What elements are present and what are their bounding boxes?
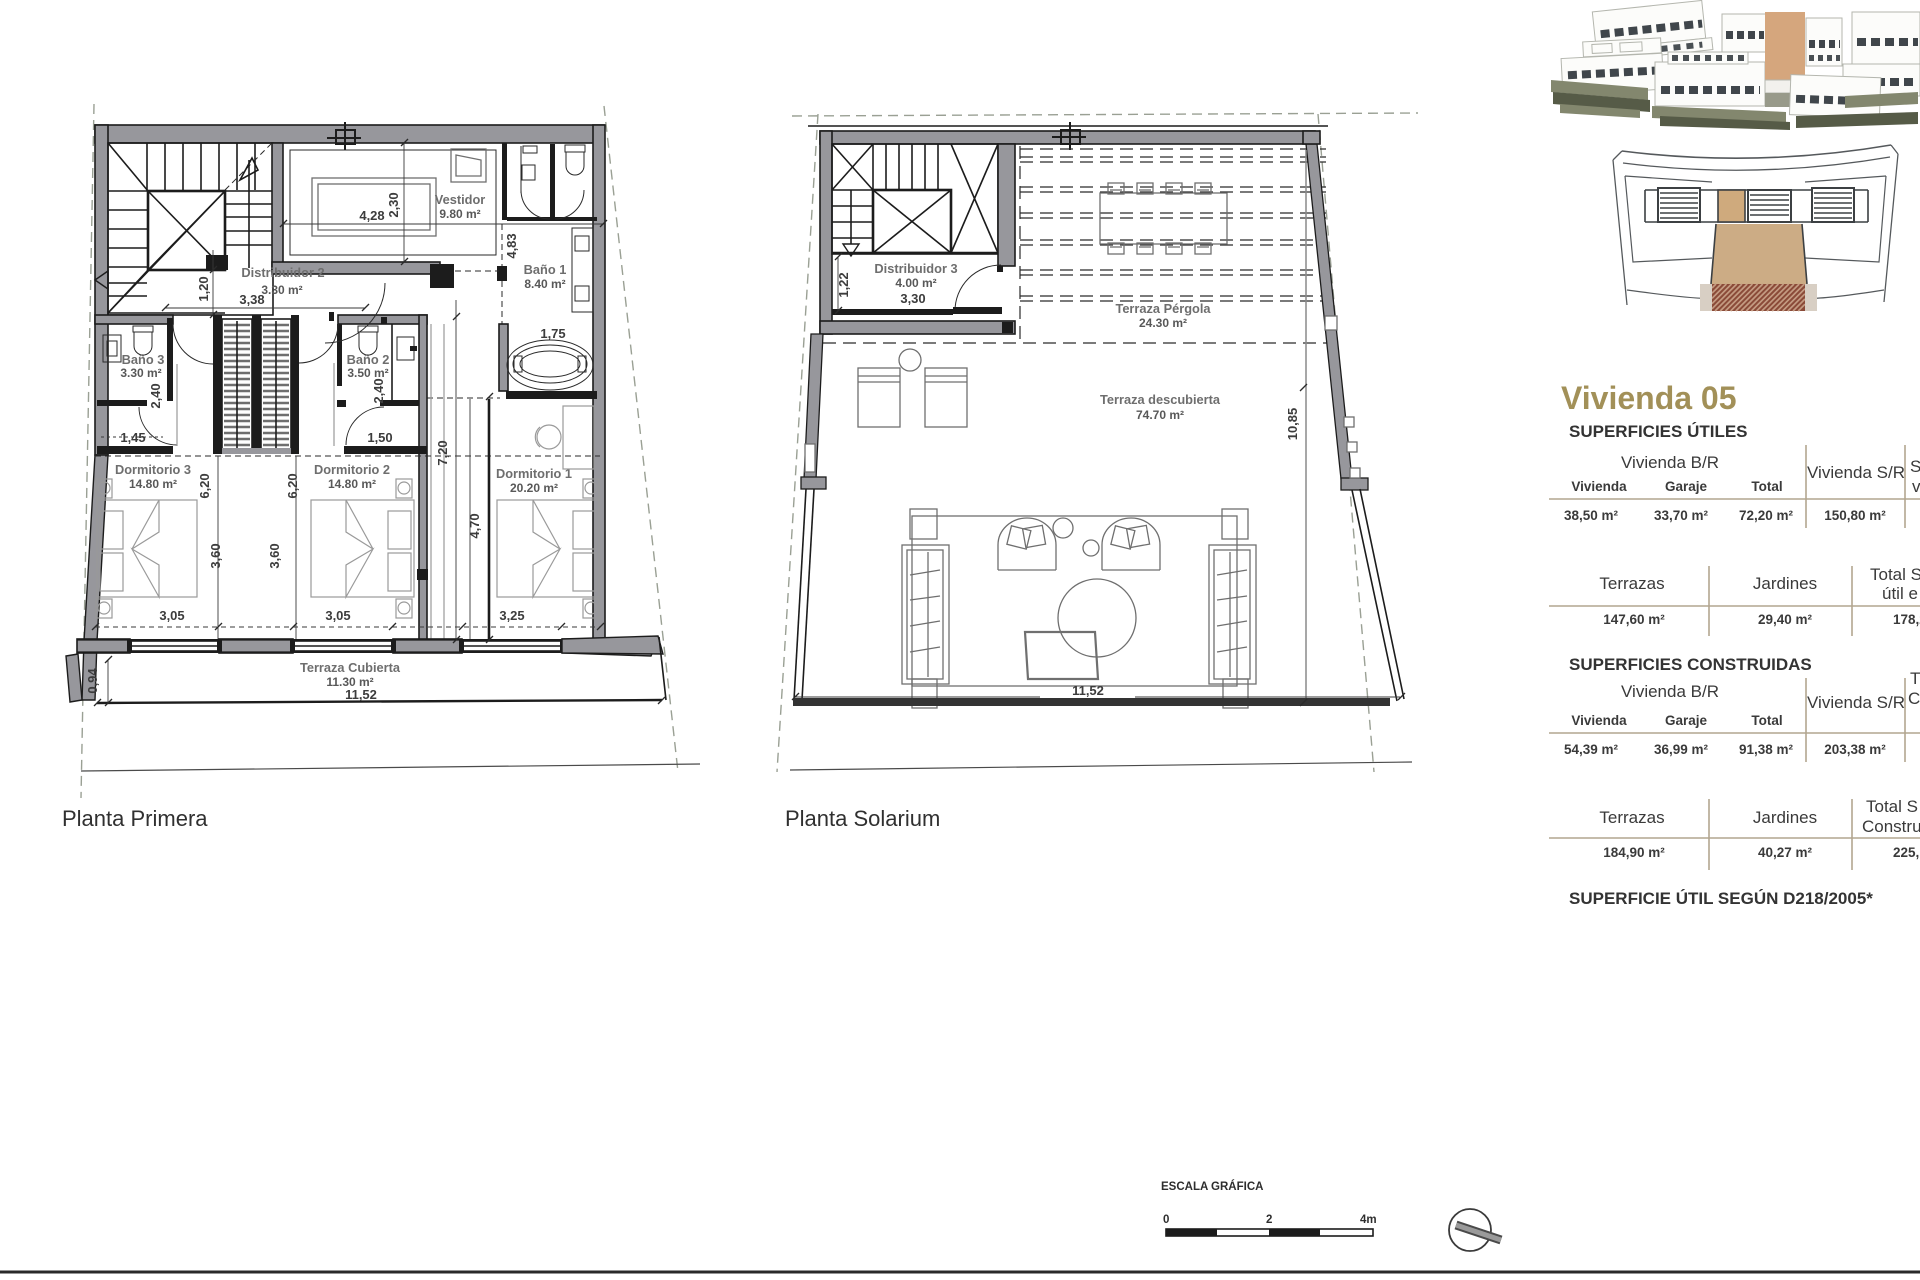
svg-text:Terraza Cubierta: Terraza Cubierta (300, 660, 401, 675)
svg-text:3,60: 3,60 (267, 543, 282, 568)
svg-text:147,60 m²: 147,60 m² (1603, 612, 1665, 627)
svg-text:33,70 m²: 33,70 m² (1654, 508, 1709, 523)
svg-text:11,52: 11,52 (1072, 683, 1104, 698)
svg-text:T: T (1910, 669, 1920, 688)
svg-text:1,45: 1,45 (120, 430, 145, 445)
svg-text:Distribuidor 2: Distribuidor 2 (241, 265, 324, 280)
svg-text:74.70 m²: 74.70 m² (1136, 408, 1184, 422)
svg-text:SUPERFICIES ÚTILES: SUPERFICIES ÚTILES (1569, 422, 1748, 441)
svg-text:Terraza descubierta: Terraza descubierta (1100, 392, 1221, 407)
svg-text:6,20: 6,20 (285, 473, 300, 498)
svg-text:0,94: 0,94 (85, 668, 100, 694)
svg-text:6,20: 6,20 (197, 473, 212, 498)
svg-text:4,70: 4,70 (467, 513, 482, 538)
svg-text:Terrazas: Terrazas (1599, 808, 1664, 827)
svg-text:Vivienda S/R: Vivienda S/R (1807, 693, 1905, 712)
svg-text:Jardines: Jardines (1753, 574, 1817, 593)
svg-text:Vivienda 05: Vivienda 05 (1561, 380, 1737, 416)
svg-text:Dormitorio 2: Dormitorio 2 (314, 462, 390, 477)
svg-text:Garaje: Garaje (1665, 713, 1708, 728)
svg-text:1,20: 1,20 (196, 276, 211, 301)
svg-text:3,60: 3,60 (208, 543, 223, 568)
svg-text:225,1: 225,1 (1893, 845, 1920, 860)
svg-text:3.50 m²: 3.50 m² (347, 366, 388, 380)
svg-text:Vestidor: Vestidor (435, 192, 486, 207)
svg-text:útil e: útil e (1882, 584, 1918, 603)
svg-text:Terraza Pérgola: Terraza Pérgola (1115, 301, 1211, 316)
svg-text:3.30 m²: 3.30 m² (261, 283, 302, 297)
svg-text:Baño 2: Baño 2 (347, 352, 390, 367)
svg-text:SUPERFICIES CONSTRUIDAS: SUPERFICIES CONSTRUIDAS (1569, 655, 1812, 674)
svg-text:10,85: 10,85 (1285, 408, 1300, 441)
svg-text:Construid: Construid (1862, 817, 1920, 836)
svg-text:v: v (1912, 477, 1920, 496)
svg-text:14.80 m²: 14.80 m² (328, 477, 376, 491)
svg-text:2: 2 (1266, 1214, 1272, 1226)
svg-text:1,50: 1,50 (367, 430, 392, 445)
svg-text:Terrazas: Terrazas (1599, 574, 1664, 593)
svg-text:Baño 1: Baño 1 (524, 262, 567, 277)
svg-text:91,38 m²: 91,38 m² (1739, 742, 1794, 757)
svg-text:1,75: 1,75 (540, 326, 565, 341)
svg-text:Dormitorio 3: Dormitorio 3 (115, 462, 191, 477)
svg-text:ESCALA GRÁFICA: ESCALA GRÁFICA (1161, 1180, 1263, 1193)
svg-text:Total S: Total S (1866, 797, 1918, 816)
svg-text:2,30: 2,30 (386, 192, 401, 217)
svg-text:20.20 m²: 20.20 m² (510, 481, 558, 495)
svg-text:SUPERFICIE ÚTIL SEGÚN D218/200: SUPERFICIE ÚTIL SEGÚN D218/2005* (1569, 889, 1873, 908)
svg-text:178,2: 178,2 (1893, 612, 1920, 627)
svg-text:2,40: 2,40 (148, 383, 163, 408)
svg-text:3,38: 3,38 (239, 292, 264, 307)
svg-text:3,05: 3,05 (159, 608, 184, 623)
svg-text:0: 0 (1163, 1214, 1169, 1226)
svg-text:24.30 m²: 24.30 m² (1139, 316, 1187, 330)
svg-text:184,90 m²: 184,90 m² (1603, 845, 1665, 860)
svg-text:29,40 m²: 29,40 m² (1758, 612, 1813, 627)
svg-text:72,20 m²: 72,20 m² (1739, 508, 1794, 523)
svg-text:3,30: 3,30 (900, 291, 925, 306)
svg-text:4,83: 4,83 (504, 233, 519, 258)
svg-text:36,99 m²: 36,99 m² (1654, 742, 1709, 757)
svg-text:Vivienda: Vivienda (1571, 479, 1627, 494)
svg-text:203,38 m²: 203,38 m² (1824, 742, 1886, 757)
svg-text:9.80 m²: 9.80 m² (439, 207, 480, 221)
svg-text:11,52: 11,52 (345, 687, 377, 702)
svg-text:150,80 m²: 150,80 m² (1824, 508, 1886, 523)
svg-text:Vivienda S/R: Vivienda S/R (1807, 463, 1905, 482)
svg-text:38,50 m²: 38,50 m² (1564, 508, 1619, 523)
svg-text:Total: Total (1751, 713, 1782, 728)
svg-text:Jardines: Jardines (1753, 808, 1817, 827)
svg-text:Vivienda: Vivienda (1571, 713, 1627, 728)
svg-text:7,20: 7,20 (435, 440, 450, 465)
svg-text:2,40: 2,40 (371, 378, 386, 403)
svg-text:4m: 4m (1360, 1214, 1377, 1226)
svg-text:S: S (1910, 457, 1920, 476)
svg-text:Dormitorio 1: Dormitorio 1 (496, 466, 572, 481)
svg-text:8.40 m²: 8.40 m² (524, 277, 565, 291)
svg-text:C: C (1908, 689, 1920, 708)
svg-text:4,28: 4,28 (359, 208, 384, 223)
svg-text:Vivienda B/R: Vivienda B/R (1621, 682, 1719, 701)
svg-text:4.00 m²: 4.00 m² (895, 276, 936, 290)
svg-text:40,27 m²: 40,27 m² (1758, 845, 1813, 860)
svg-text:Vivienda B/R: Vivienda B/R (1621, 453, 1719, 472)
svg-text:Total S: Total S (1870, 565, 1920, 584)
svg-text:3,05: 3,05 (325, 608, 350, 623)
svg-text:Planta Solarium: Planta Solarium (785, 806, 940, 831)
svg-text:3,25: 3,25 (499, 608, 524, 623)
svg-text:14.80 m²: 14.80 m² (129, 477, 177, 491)
svg-text:3.30 m²: 3.30 m² (120, 366, 161, 380)
svg-text:Planta Primera: Planta Primera (62, 806, 208, 831)
svg-text:Total: Total (1751, 479, 1782, 494)
svg-text:Baño 3: Baño 3 (122, 352, 165, 367)
svg-text:Distribuidor 3: Distribuidor 3 (874, 261, 957, 276)
svg-text:Garaje: Garaje (1665, 479, 1708, 494)
svg-text:54,39 m²: 54,39 m² (1564, 742, 1619, 757)
